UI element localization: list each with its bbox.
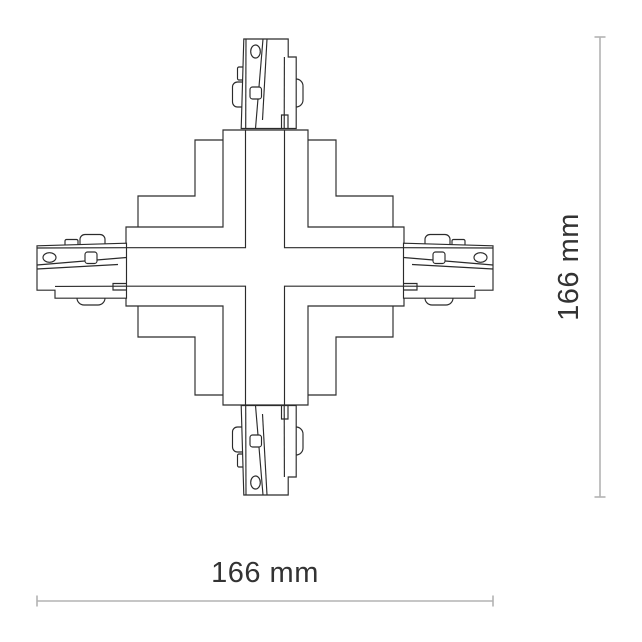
plug-right	[404, 235, 494, 306]
technical-drawing: 166 mm 166 mm	[0, 0, 642, 642]
dimension-width-label: 166 mm	[211, 557, 319, 589]
dimension-height: 166 mm	[553, 37, 606, 497]
connector-body	[126, 130, 404, 405]
plug-top	[233, 39, 304, 129]
plug-bottom	[233, 406, 304, 496]
plug-left	[37, 235, 127, 306]
body-plate-upper	[126, 130, 404, 405]
dimension-width: 166 mm	[37, 557, 493, 607]
drawing-canvas: 166 mm 166 mm	[0, 0, 642, 642]
dimension-height-label: 166 mm	[553, 213, 585, 321]
